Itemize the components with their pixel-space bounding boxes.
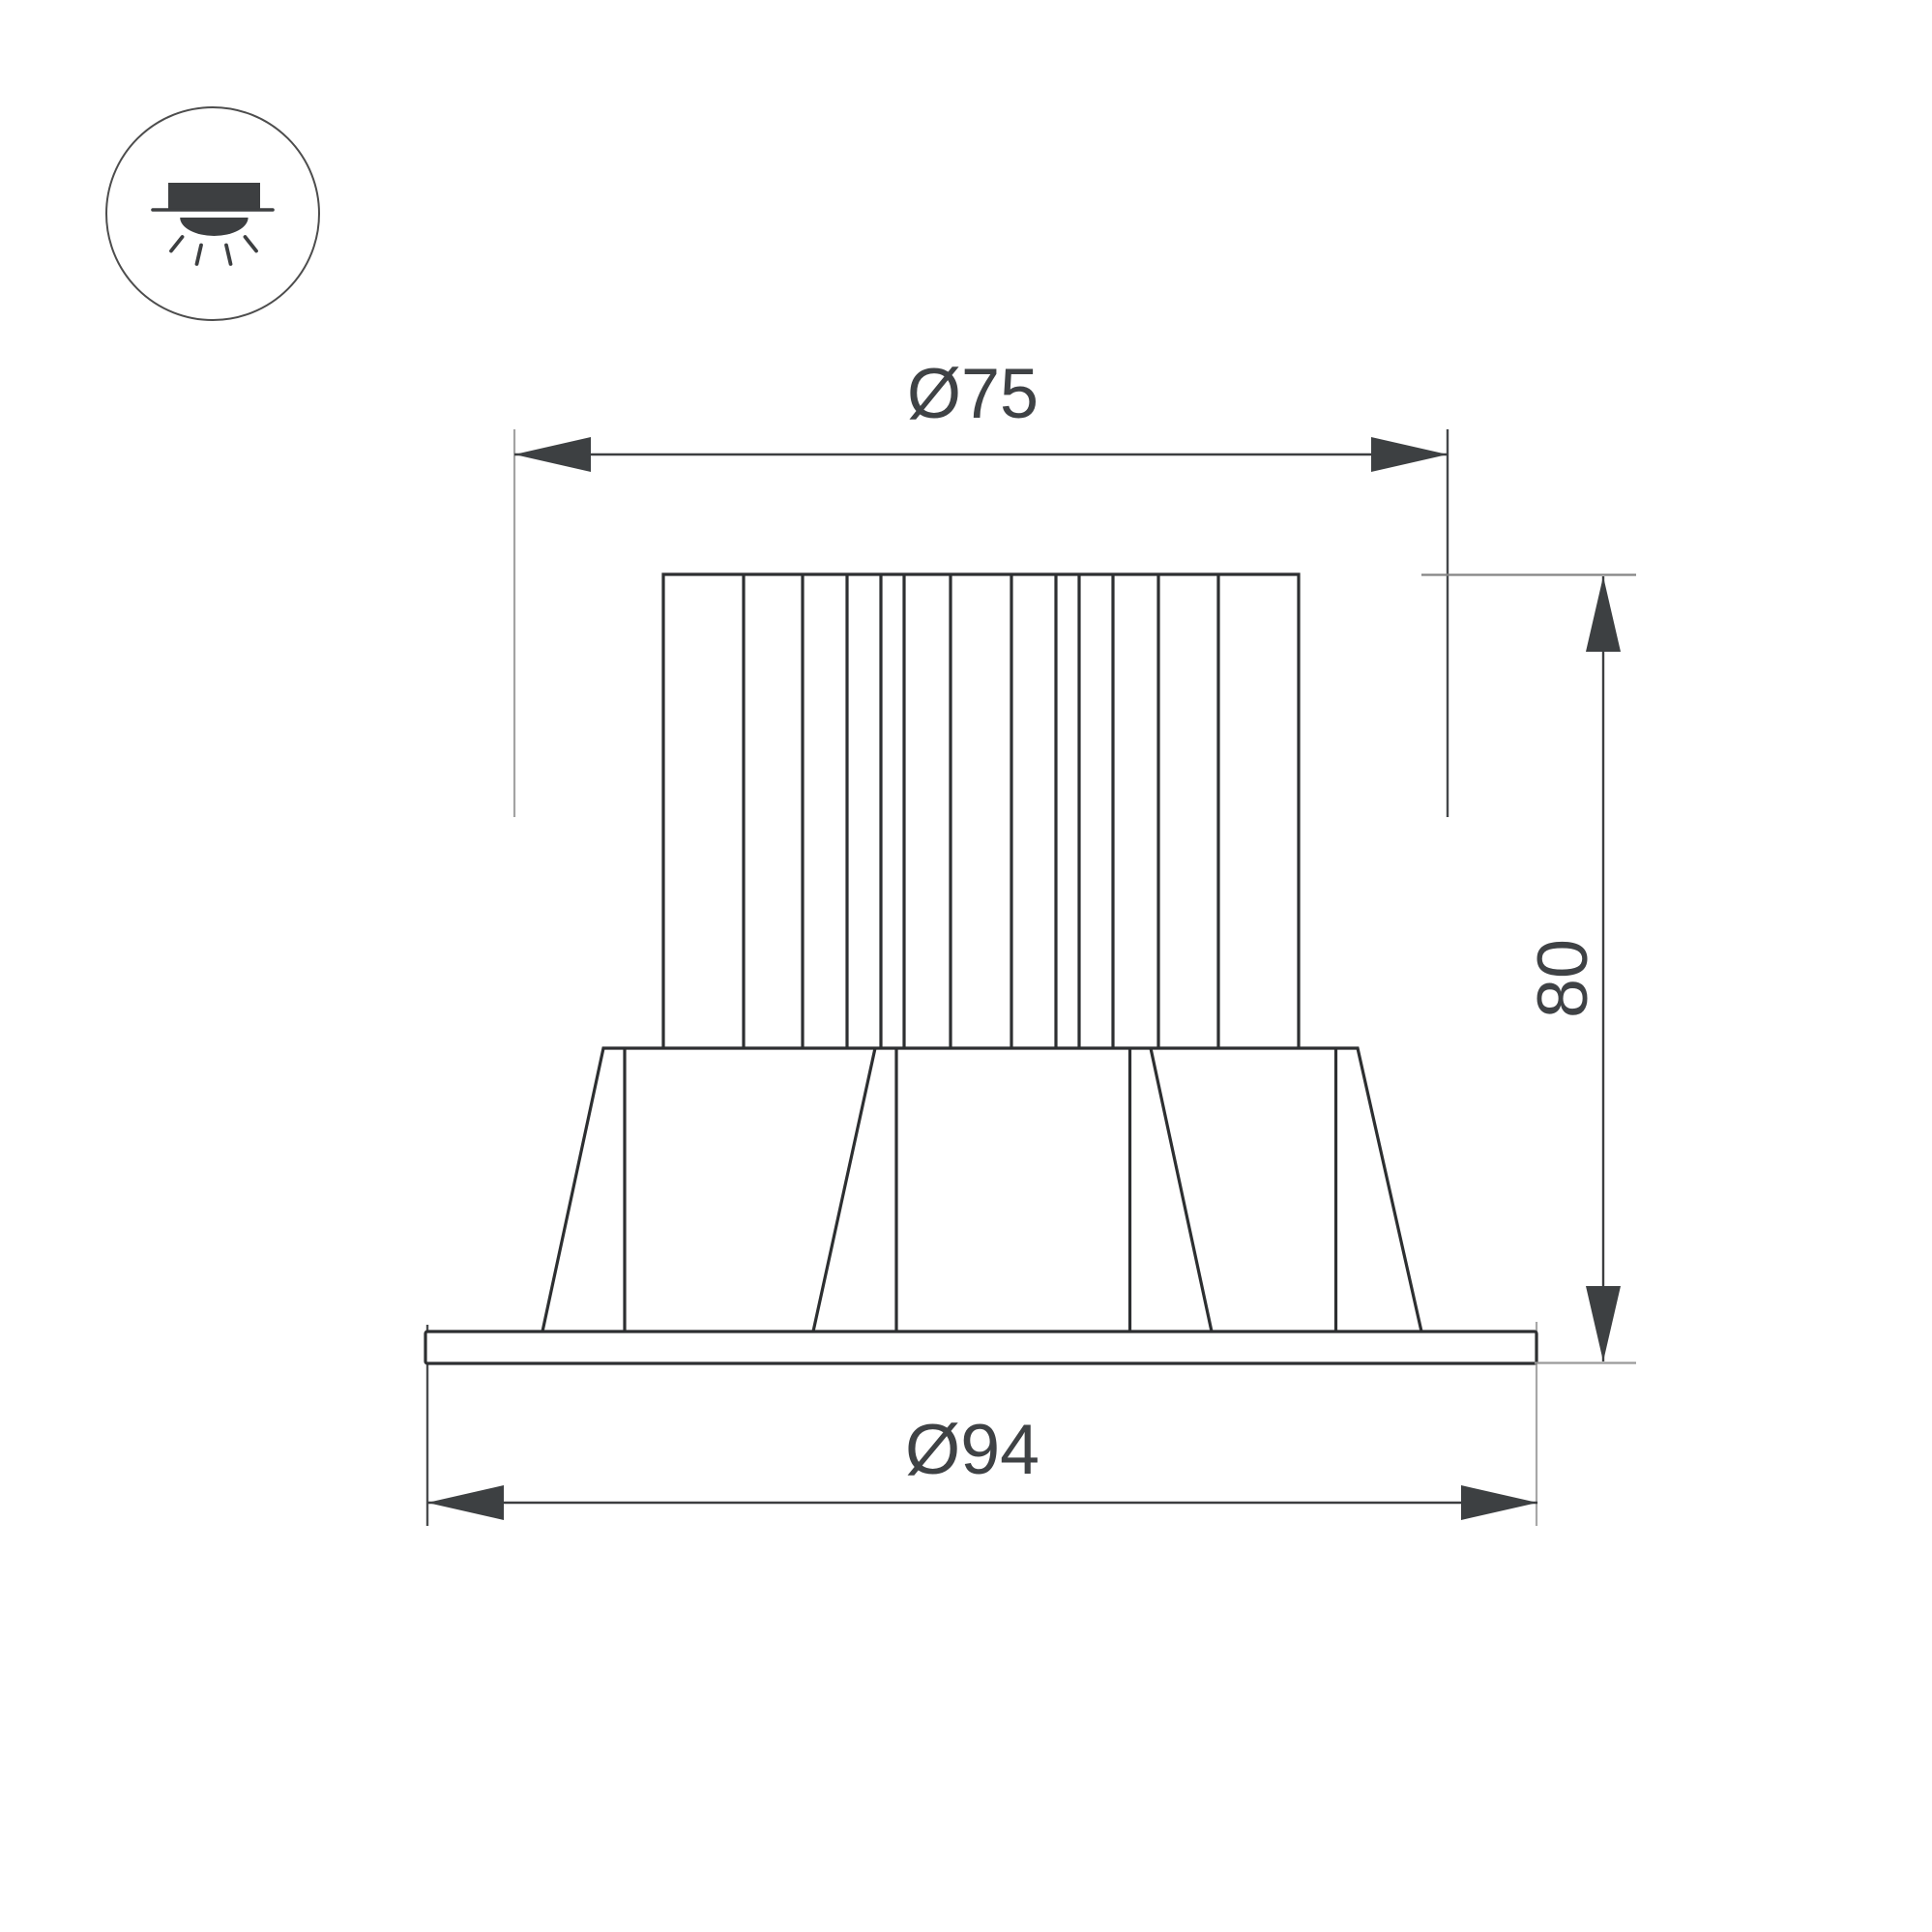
svg-text:Ø75: Ø75: [907, 355, 1039, 433]
svg-text:Ø94: Ø94: [905, 1411, 1039, 1489]
svg-text:80: 80: [1524, 939, 1602, 1018]
